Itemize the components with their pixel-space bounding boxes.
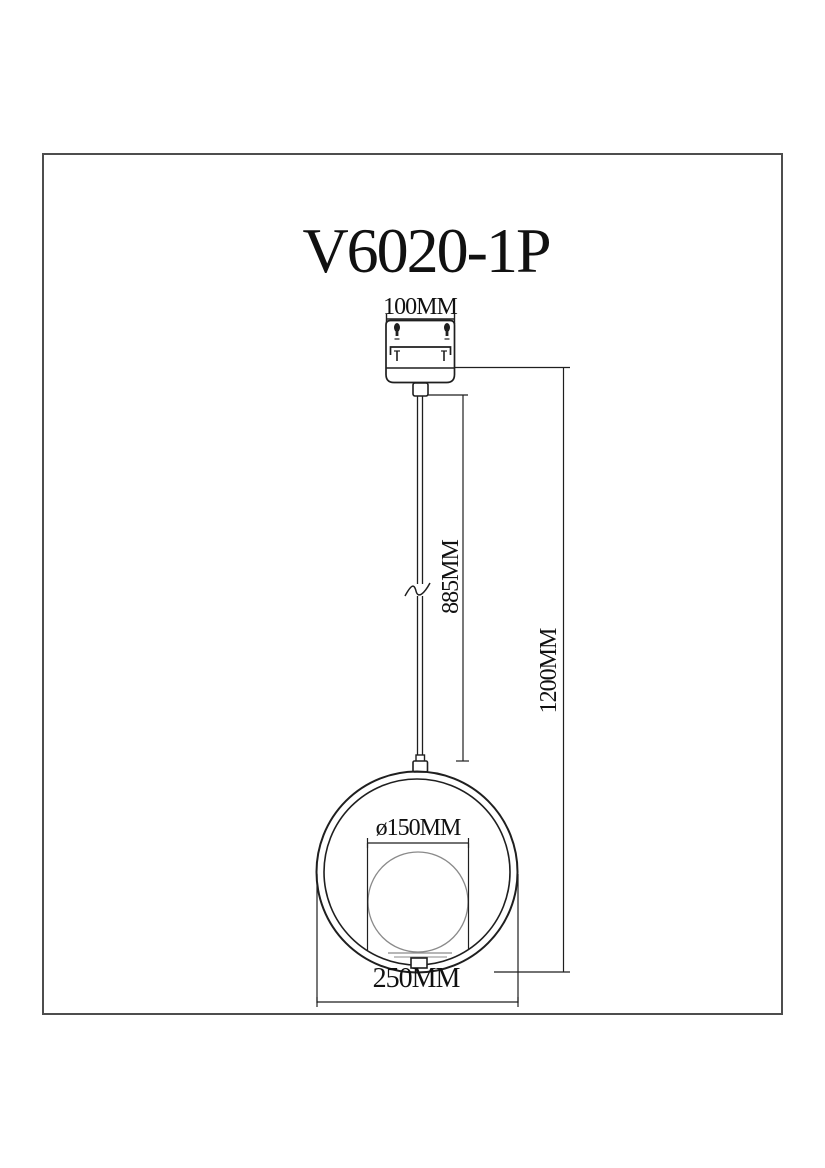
ring-diameter-label: 250MM (356, 966, 476, 992)
suspension-rod (405, 396, 433, 761)
ring-top-connector (413, 755, 428, 772)
ceiling-canopy (386, 321, 455, 397)
spec-sheet-page: V6020-1P (0, 0, 825, 1168)
globe-outline (368, 852, 468, 952)
ring-outer-circle (317, 772, 518, 973)
ring-frame (317, 772, 518, 973)
overall-height-label: 1200MM (536, 606, 562, 736)
cord-length-label: 885MM (438, 522, 464, 632)
globe-diameter-label: ø150MM (368, 815, 468, 841)
cord-grip-fitting (413, 383, 428, 396)
canopy-width-label: 100MM (383, 294, 457, 320)
ring-inner-circle (324, 779, 510, 965)
glass-globe (368, 852, 468, 968)
globe-diameter-dimension (368, 838, 469, 950)
